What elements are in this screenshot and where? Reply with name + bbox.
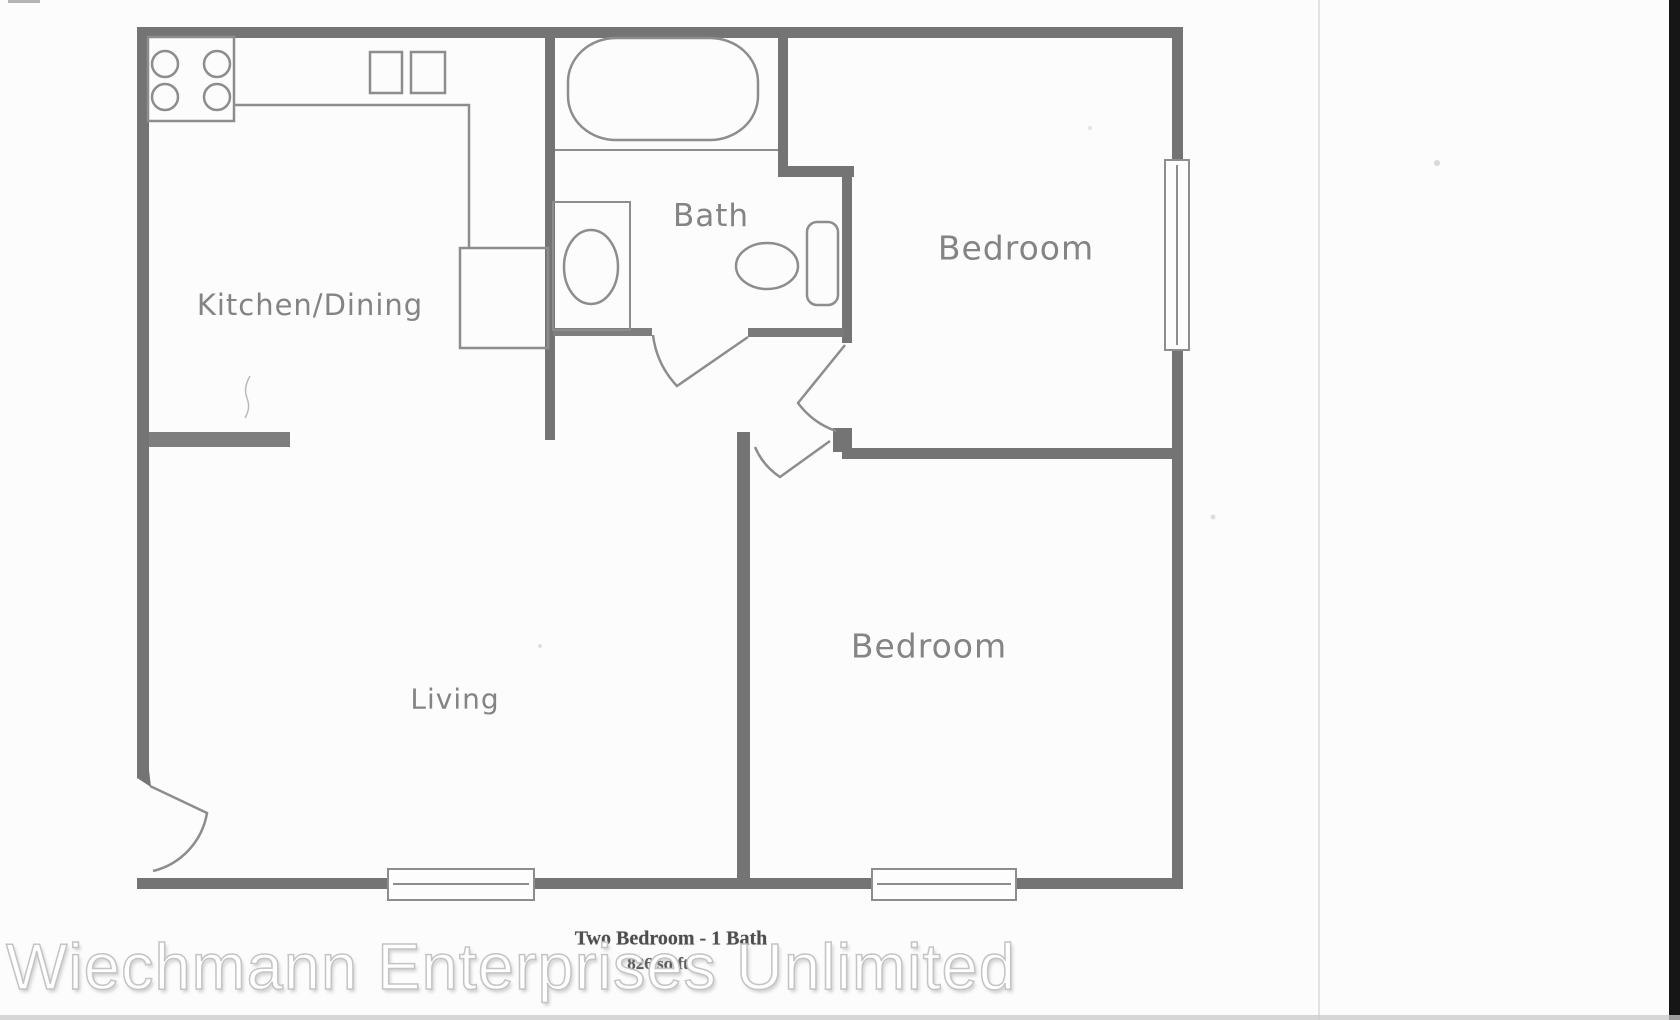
door-bath — [653, 335, 748, 386]
pen-squiggle — [245, 376, 250, 418]
wall-hall-south — [748, 328, 844, 337]
room-label-kitchen: Kitchen/Dining — [197, 288, 423, 322]
stove-burner-icon — [204, 84, 230, 110]
speck — [1434, 160, 1440, 166]
bath-sink-icon — [564, 230, 618, 304]
refrigerator-icon — [460, 248, 548, 348]
door-bedroom-lower — [755, 441, 830, 477]
door-bedroom-upper — [798, 345, 845, 431]
speck — [1211, 515, 1216, 520]
speck — [1088, 126, 1092, 130]
wall-bottom — [137, 878, 1183, 889]
toilet-tank-icon — [807, 222, 838, 305]
stove-burner-icon — [152, 51, 178, 77]
toilet-bowl-icon — [736, 243, 798, 289]
top-edge-mark — [8, 0, 40, 3]
wall-bath-bedroom-upper — [778, 38, 788, 175]
kitchen-counter-line — [234, 105, 469, 248]
windows — [388, 160, 1189, 900]
kitchen-sink-basin-icon — [370, 52, 402, 93]
room-label-living: Living — [410, 683, 499, 716]
bathtub-icon — [568, 38, 758, 140]
door-entry — [150, 786, 207, 871]
speck — [538, 644, 542, 648]
stove-burner-icon — [204, 51, 230, 77]
room-label-bath: Bath — [673, 198, 749, 234]
floor-plan — [0, 0, 1680, 1020]
kitchen-sink-basin-icon — [411, 52, 445, 93]
stove-burner-icon — [152, 84, 178, 110]
wall-bedroom-upper-west — [842, 166, 852, 343]
wall-top — [137, 27, 1183, 38]
bottom-edge-strip — [0, 1015, 1680, 1020]
room-label-bedroom-lower: Bedroom — [851, 627, 1007, 666]
bath-fixtures — [553, 38, 838, 330]
walls — [137, 27, 1183, 889]
right-edge-bar — [1669, 0, 1680, 1020]
wall-left-door-jamb — [137, 770, 151, 787]
wall-living-bedroom-divider — [737, 432, 750, 878]
floor-plan-page: Kitchen/Dining Bath Bedroom Living Bedro… — [0, 0, 1680, 1020]
wall-kitchen-stub — [149, 432, 290, 447]
wall-left — [137, 27, 149, 770]
page-divider-line — [1318, 0, 1320, 1020]
watermark-text: Wiechmann Enterprises Unlimited — [6, 929, 1016, 1004]
wall-bedrooms-divider — [842, 448, 1172, 459]
wall-right — [1172, 27, 1183, 889]
room-label-bedroom-upper: Bedroom — [938, 229, 1094, 268]
